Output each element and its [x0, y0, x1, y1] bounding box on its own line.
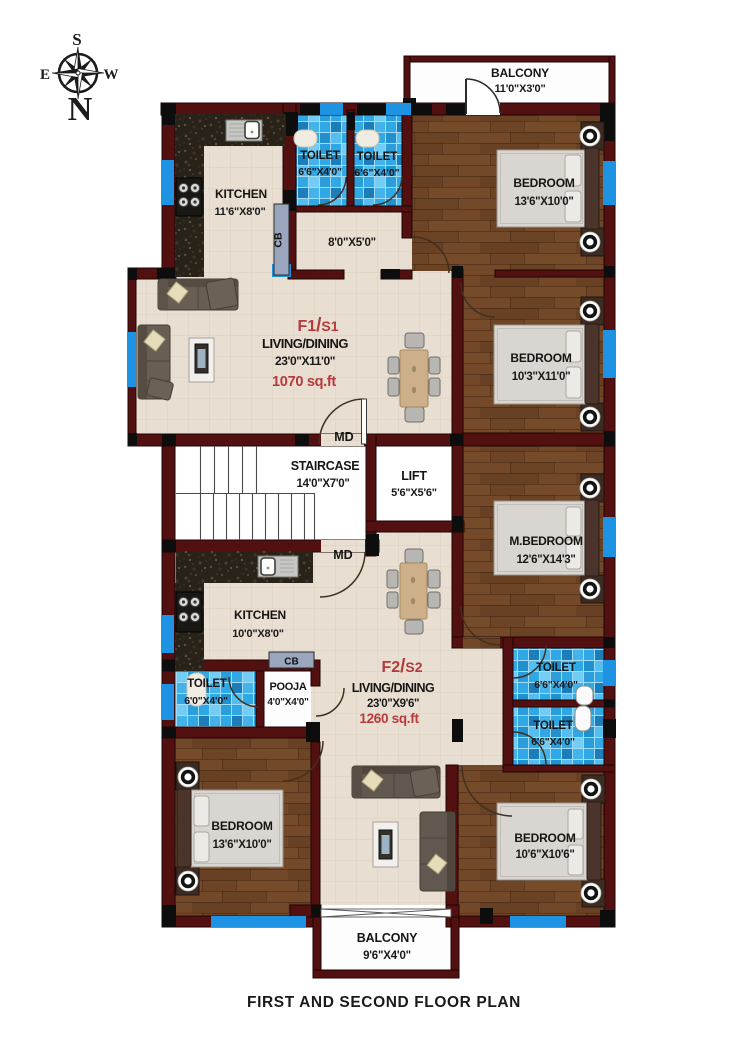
svg-text:10'3"X11'0": 10'3"X11'0"	[512, 371, 571, 383]
svg-text:10'6"X10'6": 10'6"X10'6"	[515, 849, 574, 861]
svg-text:W: W	[104, 67, 119, 83]
svg-text:23'0"X9'6": 23'0"X9'6"	[367, 698, 419, 710]
svg-text:9'6"X4'0": 9'6"X4'0"	[363, 950, 411, 962]
svg-text:11'0"X3'0": 11'0"X3'0"	[495, 83, 546, 95]
svg-text:6'0"X4'0": 6'0"X4'0"	[184, 695, 228, 707]
svg-text:4'0"X4'0": 4'0"X4'0"	[267, 697, 309, 708]
svg-text:KITCHEN: KITCHEN	[234, 608, 286, 622]
svg-text:11'6"X8'0": 11'6"X8'0"	[215, 206, 266, 218]
svg-text:TOILET: TOILET	[533, 720, 573, 732]
svg-text:LIVING/DINING: LIVING/DINING	[262, 336, 348, 351]
svg-text:13'6"X10'0": 13'6"X10'0"	[514, 196, 573, 208]
svg-text:BEDROOM: BEDROOM	[513, 176, 574, 190]
svg-text:TOILET: TOILET	[536, 662, 576, 674]
svg-text:M.BEDROOM: M.BEDROOM	[509, 534, 583, 548]
svg-text:BEDROOM: BEDROOM	[510, 351, 571, 365]
svg-text:6'6"X4'0": 6'6"X4'0"	[298, 166, 342, 178]
svg-text:N: N	[68, 91, 93, 128]
svg-text:TOILET: TOILET	[187, 678, 227, 690]
svg-text:F2/S2: F2/S2	[381, 656, 422, 677]
svg-text:23'0"X11'0": 23'0"X11'0"	[275, 354, 335, 368]
svg-text:14'0"X7'0": 14'0"X7'0"	[296, 478, 349, 490]
svg-text:MD: MD	[333, 548, 352, 562]
svg-text:POOJA: POOJA	[269, 681, 306, 693]
svg-text:S: S	[72, 30, 81, 49]
svg-text:LIFT: LIFT	[401, 469, 427, 483]
svg-text:CB: CB	[284, 657, 298, 668]
svg-text:LIVING/DINING: LIVING/DINING	[352, 681, 434, 695]
svg-text:BALCONY: BALCONY	[357, 931, 418, 945]
svg-text:6'6"X4'0": 6'6"X4'0"	[531, 736, 575, 748]
svg-text:12'6"X14'3": 12'6"X14'3"	[516, 554, 575, 566]
svg-text:10'0"X8'0": 10'0"X8'0"	[232, 628, 284, 640]
svg-text:6'6"X4'0": 6'6"X4'0"	[354, 167, 399, 179]
svg-text:8'0"X5'0": 8'0"X5'0"	[328, 237, 376, 249]
svg-text:KITCHEN: KITCHEN	[215, 187, 267, 201]
svg-text:STAIRCASE: STAIRCASE	[291, 459, 360, 473]
svg-text:1260 sq.ft: 1260 sq.ft	[359, 711, 419, 726]
svg-text:BEDROOM: BEDROOM	[211, 819, 272, 833]
svg-text:6'6"X4'0": 6'6"X4'0"	[534, 679, 578, 691]
svg-text:5'6"X5'6": 5'6"X5'6"	[391, 487, 437, 499]
svg-text:TOILET: TOILET	[300, 150, 340, 162]
svg-text:BEDROOM: BEDROOM	[514, 831, 575, 845]
svg-text:CB: CB	[273, 232, 285, 248]
svg-text:1070 sq.ft: 1070 sq.ft	[272, 374, 336, 390]
svg-text:E: E	[40, 67, 50, 83]
svg-text:BALCONY: BALCONY	[491, 66, 549, 80]
svg-text:TOILET: TOILET	[357, 151, 398, 163]
svg-text:FIRST AND SECOND FLOOR PLAN: FIRST AND SECOND FLOOR PLAN	[247, 994, 521, 1011]
svg-text:13'6"X10'0": 13'6"X10'0"	[212, 839, 271, 851]
svg-text:F1/S1: F1/S1	[297, 315, 338, 336]
svg-text:MD: MD	[334, 430, 353, 444]
